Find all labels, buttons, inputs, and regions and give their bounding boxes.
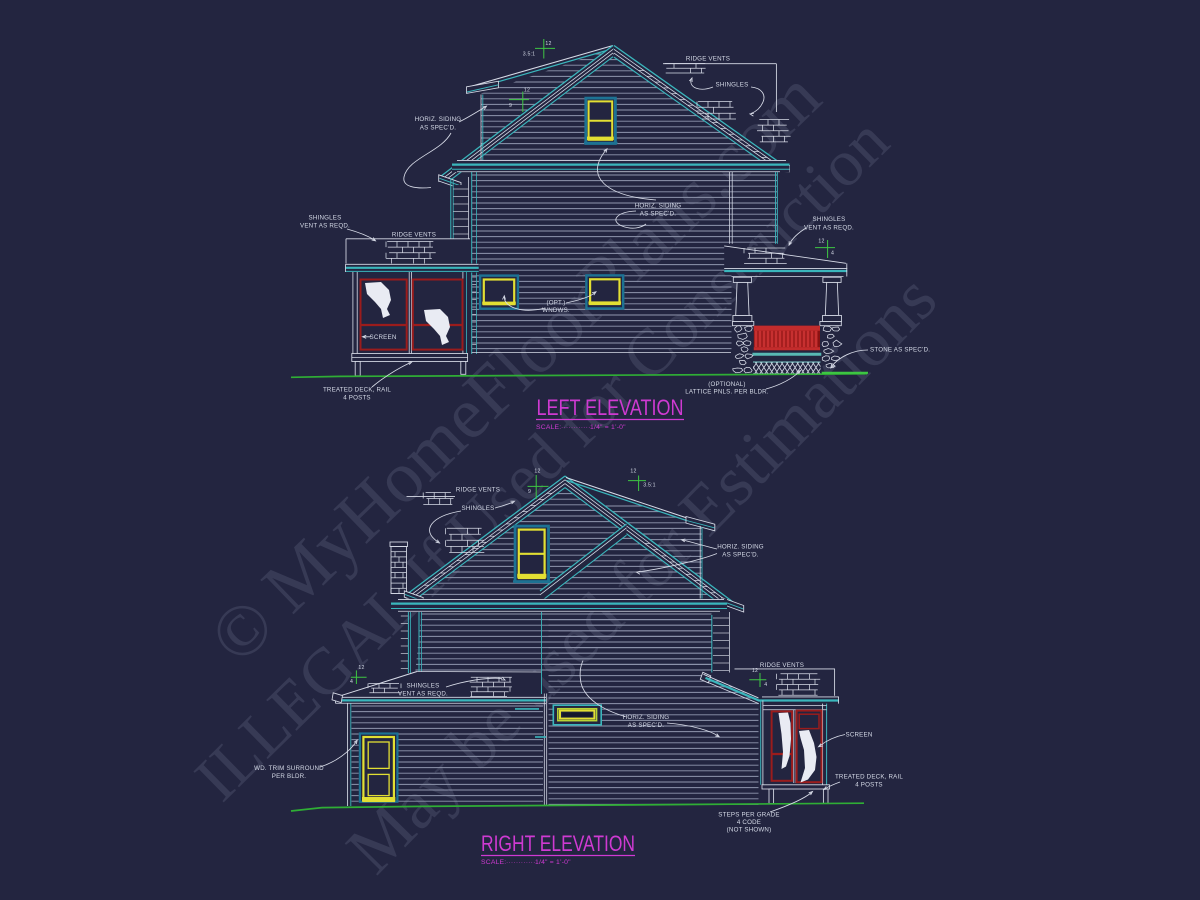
svg-text:PER BLDR.: PER BLDR. [272, 773, 307, 780]
svg-text:VENT AS REQD.: VENT AS REQD. [398, 691, 448, 698]
svg-text:STEPS PER GRADE: STEPS PER GRADE [718, 812, 779, 819]
svg-text:SHINGLES: SHINGLES [309, 215, 342, 222]
svg-text:HORIZ. SIDING: HORIZ. SIDING [717, 544, 764, 551]
svg-text:12: 12 [630, 469, 636, 475]
svg-text:4: 4 [764, 682, 767, 688]
svg-text:12: 12 [818, 239, 824, 245]
svg-text:12: 12 [534, 469, 540, 475]
svg-text:STONE AS SPEC’D.: STONE AS SPEC’D. [870, 347, 930, 354]
svg-text:(OPT.): (OPT.) [546, 300, 565, 307]
svg-text:4 POSTS: 4 POSTS [855, 781, 883, 788]
svg-text:SCALE:: SCALE: [481, 859, 506, 866]
svg-text:4 CODE: 4 CODE [737, 819, 761, 826]
svg-text:SHINGLES: SHINGLES [813, 216, 846, 223]
svg-text:1/4" = 1’-0": 1/4" = 1’-0" [590, 424, 626, 431]
svg-text:3.5:1: 3.5:1 [523, 52, 536, 58]
svg-text:SHINGLES: SHINGLES [407, 683, 440, 690]
svg-text:RIDGE VENTS: RIDGE VENTS [686, 56, 730, 63]
svg-text:4 POSTS: 4 POSTS [343, 395, 371, 402]
svg-text:AS SPEC’D.: AS SPEC’D. [722, 552, 758, 559]
svg-text:HORIZ. SIDING: HORIZ. SIDING [415, 116, 462, 123]
svg-text:12: 12 [524, 88, 530, 94]
svg-text:HORIZ. SIDING: HORIZ. SIDING [623, 714, 670, 721]
svg-text:AS SPEC’D.: AS SPEC’D. [640, 211, 676, 218]
svg-text:AS SPEC’D.: AS SPEC’D. [628, 722, 664, 729]
svg-text:9: 9 [528, 489, 531, 495]
svg-text:3.5:1: 3.5:1 [643, 483, 656, 489]
svg-text:HORIZ. SIDING: HORIZ. SIDING [635, 203, 682, 210]
svg-text:1/4" = 1’-0": 1/4" = 1’-0" [535, 859, 571, 866]
svg-text:SCREEN: SCREEN [370, 334, 397, 341]
svg-text:(NOT SHOWN): (NOT SHOWN) [727, 827, 772, 834]
svg-text:WNDWS.: WNDWS. [542, 307, 570, 314]
svg-text:12: 12 [358, 665, 364, 671]
svg-text:TREATED DECK, RAIL: TREATED DECK, RAIL [323, 387, 391, 394]
svg-text:RIDGE VENTS: RIDGE VENTS [392, 232, 436, 239]
svg-text:4: 4 [350, 679, 353, 685]
svg-text:············: ············ [506, 859, 536, 866]
svg-text:RIDGE VENTS: RIDGE VENTS [456, 487, 500, 494]
svg-text:(OPTIONAL): (OPTIONAL) [708, 381, 745, 388]
svg-text:LEFT ELEVATION: LEFT ELEVATION [537, 395, 684, 420]
svg-text:RIDGE VENTS: RIDGE VENTS [760, 662, 804, 669]
svg-text:LATTICE PNLS. PER BLDR.: LATTICE PNLS. PER BLDR. [685, 389, 769, 396]
svg-text:TREATED DECK, RAIL: TREATED DECK, RAIL [835, 774, 903, 781]
svg-text:VENT AS REQD.: VENT AS REQD. [300, 223, 350, 230]
svg-text:12: 12 [752, 668, 758, 674]
svg-text:SCALE:: SCALE: [536, 424, 561, 431]
svg-text:4: 4 [831, 251, 834, 257]
svg-text:RIGHT ELEVATION: RIGHT ELEVATION [481, 831, 635, 856]
svg-text:SHINGLES: SHINGLES [716, 82, 749, 89]
svg-text:SCREEN: SCREEN [846, 732, 873, 739]
svg-text:AS SPEC’D.: AS SPEC’D. [420, 125, 456, 132]
svg-text:9: 9 [509, 103, 512, 109]
svg-text:············: ············ [561, 424, 591, 431]
svg-text:VENT AS REQD.: VENT AS REQD. [804, 225, 854, 232]
svg-text:SHINGLES: SHINGLES [462, 505, 495, 512]
svg-text:12: 12 [545, 41, 551, 47]
svg-text:WD. TRIM SURROUND: WD. TRIM SURROUND [254, 765, 324, 772]
